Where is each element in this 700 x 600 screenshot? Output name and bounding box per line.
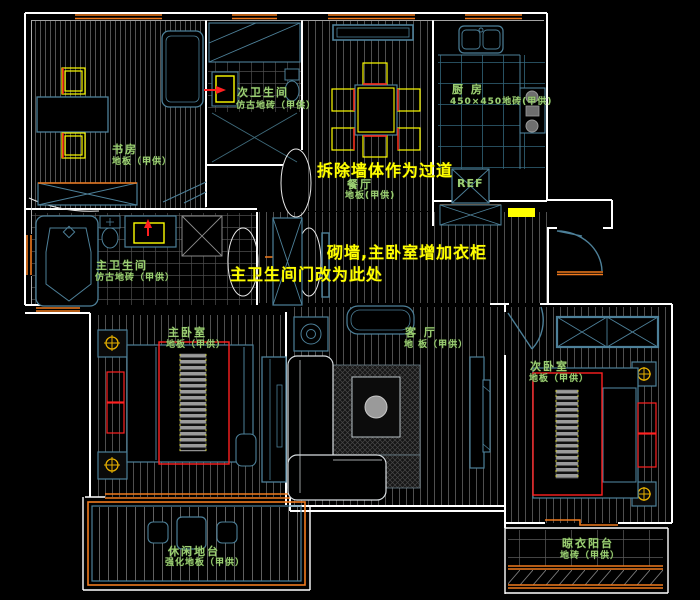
wall-entry <box>547 13 612 229</box>
annotation-demolish-wall: 拆除墙体作为过道 <box>317 163 453 179</box>
dining-sideboard <box>333 25 413 40</box>
mbed-quilt <box>180 354 206 451</box>
mbed-wardrobe <box>262 357 286 482</box>
annotation-build-wall: 砌墙,主卧室增加衣柜 <box>327 245 487 261</box>
mbed-nightstand-bottom <box>98 452 127 479</box>
window-master-bath-left <box>27 235 31 275</box>
bath2-toilet-tank <box>285 69 299 80</box>
window-left-step <box>36 308 80 311</box>
floor-plan-canvas: 书房 地板（甲供） 次卫生间 仿古地砖（甲供） 餐厅 地板(甲供) 厨 房 45… <box>0 0 700 600</box>
note-secondary-bedroom: 地板（甲供） <box>529 375 589 384</box>
window-kitchen-top <box>465 15 522 19</box>
floor-plan-drawing <box>0 0 700 600</box>
entry-yellow-mat <box>508 208 535 217</box>
master-bath-tub <box>36 216 98 306</box>
note-dining: 地板(甲供) <box>345 192 395 201</box>
window-bath2-top <box>232 15 277 19</box>
bath2-closet <box>209 23 300 62</box>
label-drying-balcony: 晾衣阳台 <box>562 538 614 549</box>
living-sideboard <box>347 306 414 334</box>
mbed-ottoman <box>236 434 256 466</box>
master-bath-column <box>182 216 222 256</box>
label-leisure-platform: 休闲地台 <box>168 546 220 557</box>
label-secondary-bathroom: 次卫生间 <box>237 87 289 98</box>
note-leisure-platform: 强化地板（甲供） <box>165 559 245 568</box>
note-study: 地板（甲供） <box>112 158 172 167</box>
note-kitchen: 450×450地砖(甲供) <box>450 98 552 107</box>
wall-master-bedroom-left <box>25 305 90 497</box>
bed2-wardrobe <box>557 317 658 347</box>
label-living: 客 厅 <box>405 327 437 338</box>
label-kitchen: 厨 房 <box>452 84 484 95</box>
study-daybed <box>162 31 203 107</box>
note-drying-balcony: 地砖（甲供） <box>560 552 620 561</box>
bed2-headboard <box>603 388 636 482</box>
entry-shoe-cabinet <box>440 205 501 225</box>
hall-column <box>273 218 302 305</box>
mbed-nightstand-top <box>98 330 127 357</box>
leisure-stool-1 <box>148 522 168 543</box>
entry-door-swing <box>557 231 602 271</box>
label-master-bathroom: 主卫生间 <box>96 260 148 271</box>
window-dining-top <box>328 15 415 19</box>
label-dining: 餐厅 <box>347 179 373 190</box>
study-closet <box>38 183 137 205</box>
note-living: 地 板（甲供） <box>404 341 468 350</box>
label-secondary-bedroom: 次卧室 <box>530 361 569 372</box>
note-master-bedroom: 地板（甲供） <box>166 341 226 350</box>
master-bath-vanity <box>125 216 176 247</box>
secondary-bath-lower-hatch <box>212 113 297 162</box>
label-study: 书房 <box>112 144 138 155</box>
label-fridge: REF <box>457 178 484 189</box>
living-coffee-table <box>352 377 400 437</box>
note-secondary-bathroom: 仿古地砖（甲供） <box>236 102 316 111</box>
label-master-bedroom: 主卧室 <box>168 327 207 338</box>
drying-balcony-hatch <box>508 570 663 585</box>
bed2-quilt <box>556 390 578 478</box>
annotation-relocate-door: 主卫生间门改为此处 <box>230 267 383 283</box>
living-speaker-box <box>294 317 328 351</box>
window-entry-sill <box>557 272 603 275</box>
kitchen-stove <box>520 88 545 133</box>
leisure-stool-2 <box>217 522 237 543</box>
note-master-bathroom: 仿古地砖（甲供） <box>95 274 175 283</box>
window-study-top <box>75 15 162 19</box>
study-desk <box>37 97 108 132</box>
dining-table <box>355 85 397 135</box>
